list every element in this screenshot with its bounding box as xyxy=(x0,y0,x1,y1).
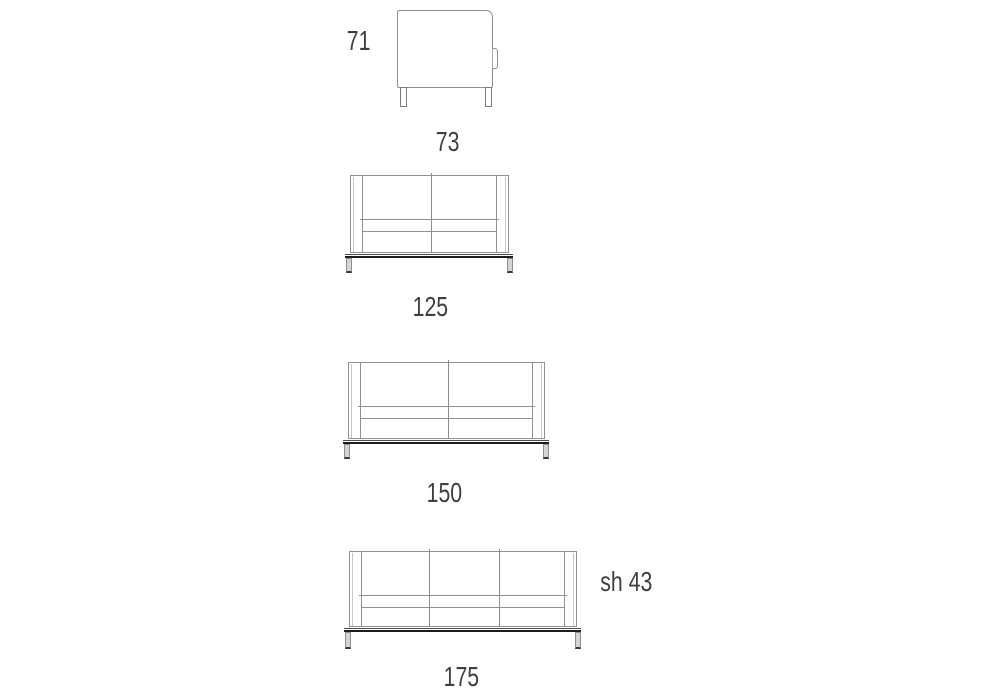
seat-cushion-line-lower xyxy=(360,418,533,419)
dimension-label-depth: 73 xyxy=(388,126,508,158)
seat-cushion-line-lower xyxy=(362,231,497,232)
armrest-line-right xyxy=(564,552,565,626)
sofa-150-front-view xyxy=(348,362,545,439)
arm-edge-line-left xyxy=(352,553,353,626)
seat-divider-second xyxy=(499,549,500,626)
side-view-armrest-profile xyxy=(492,48,498,69)
sofa-leg-left xyxy=(345,632,351,649)
armrest-line-right xyxy=(532,363,533,438)
technical-drawing-sheet: 71 73 125 xyxy=(0,0,1000,700)
seat-cushion-line-upper xyxy=(360,219,499,220)
dimension-label-height: 71 xyxy=(299,25,419,57)
sofa-leg-right xyxy=(543,444,549,459)
sofa-125-front-view xyxy=(350,175,509,253)
sofa-leg-left xyxy=(346,258,352,273)
dimension-label-width-150: 150 xyxy=(384,477,504,509)
arm-edge-line-left xyxy=(351,364,352,438)
seat-divider xyxy=(448,360,449,438)
armrest-line-right xyxy=(496,176,497,252)
base-rail xyxy=(345,254,513,258)
seat-cushion-line-lower xyxy=(361,607,565,608)
base-rail xyxy=(343,440,549,444)
sofa-175-front-view xyxy=(349,551,577,627)
side-view-back-leg xyxy=(485,87,492,107)
arm-edge-line-right xyxy=(541,364,542,438)
armrest-line-left xyxy=(360,363,361,438)
dimension-label-width-175: 175 xyxy=(401,661,521,693)
dimension-label-seat-height: sh 43 xyxy=(566,566,686,598)
seat-divider xyxy=(431,173,432,252)
sofa-body-outline xyxy=(349,551,577,627)
dimension-label-width-125: 125 xyxy=(370,291,490,323)
seat-divider-first xyxy=(429,549,430,626)
seat-cushion-line-upper xyxy=(358,406,535,407)
sofa-body-outline xyxy=(350,175,509,253)
base-rail xyxy=(344,628,581,632)
armrest-line-left xyxy=(361,552,362,626)
arm-edge-line-right xyxy=(505,177,506,252)
sofa-leg-left xyxy=(344,444,350,459)
seat-cushion-line-upper xyxy=(359,595,567,596)
sofa-body-outline xyxy=(348,362,545,439)
sofa-leg-right xyxy=(507,258,513,273)
arm-edge-line-left xyxy=(353,177,354,252)
sofa-leg-right xyxy=(575,632,581,649)
armrest-line-left xyxy=(362,176,363,252)
side-view-front-leg xyxy=(400,87,407,107)
